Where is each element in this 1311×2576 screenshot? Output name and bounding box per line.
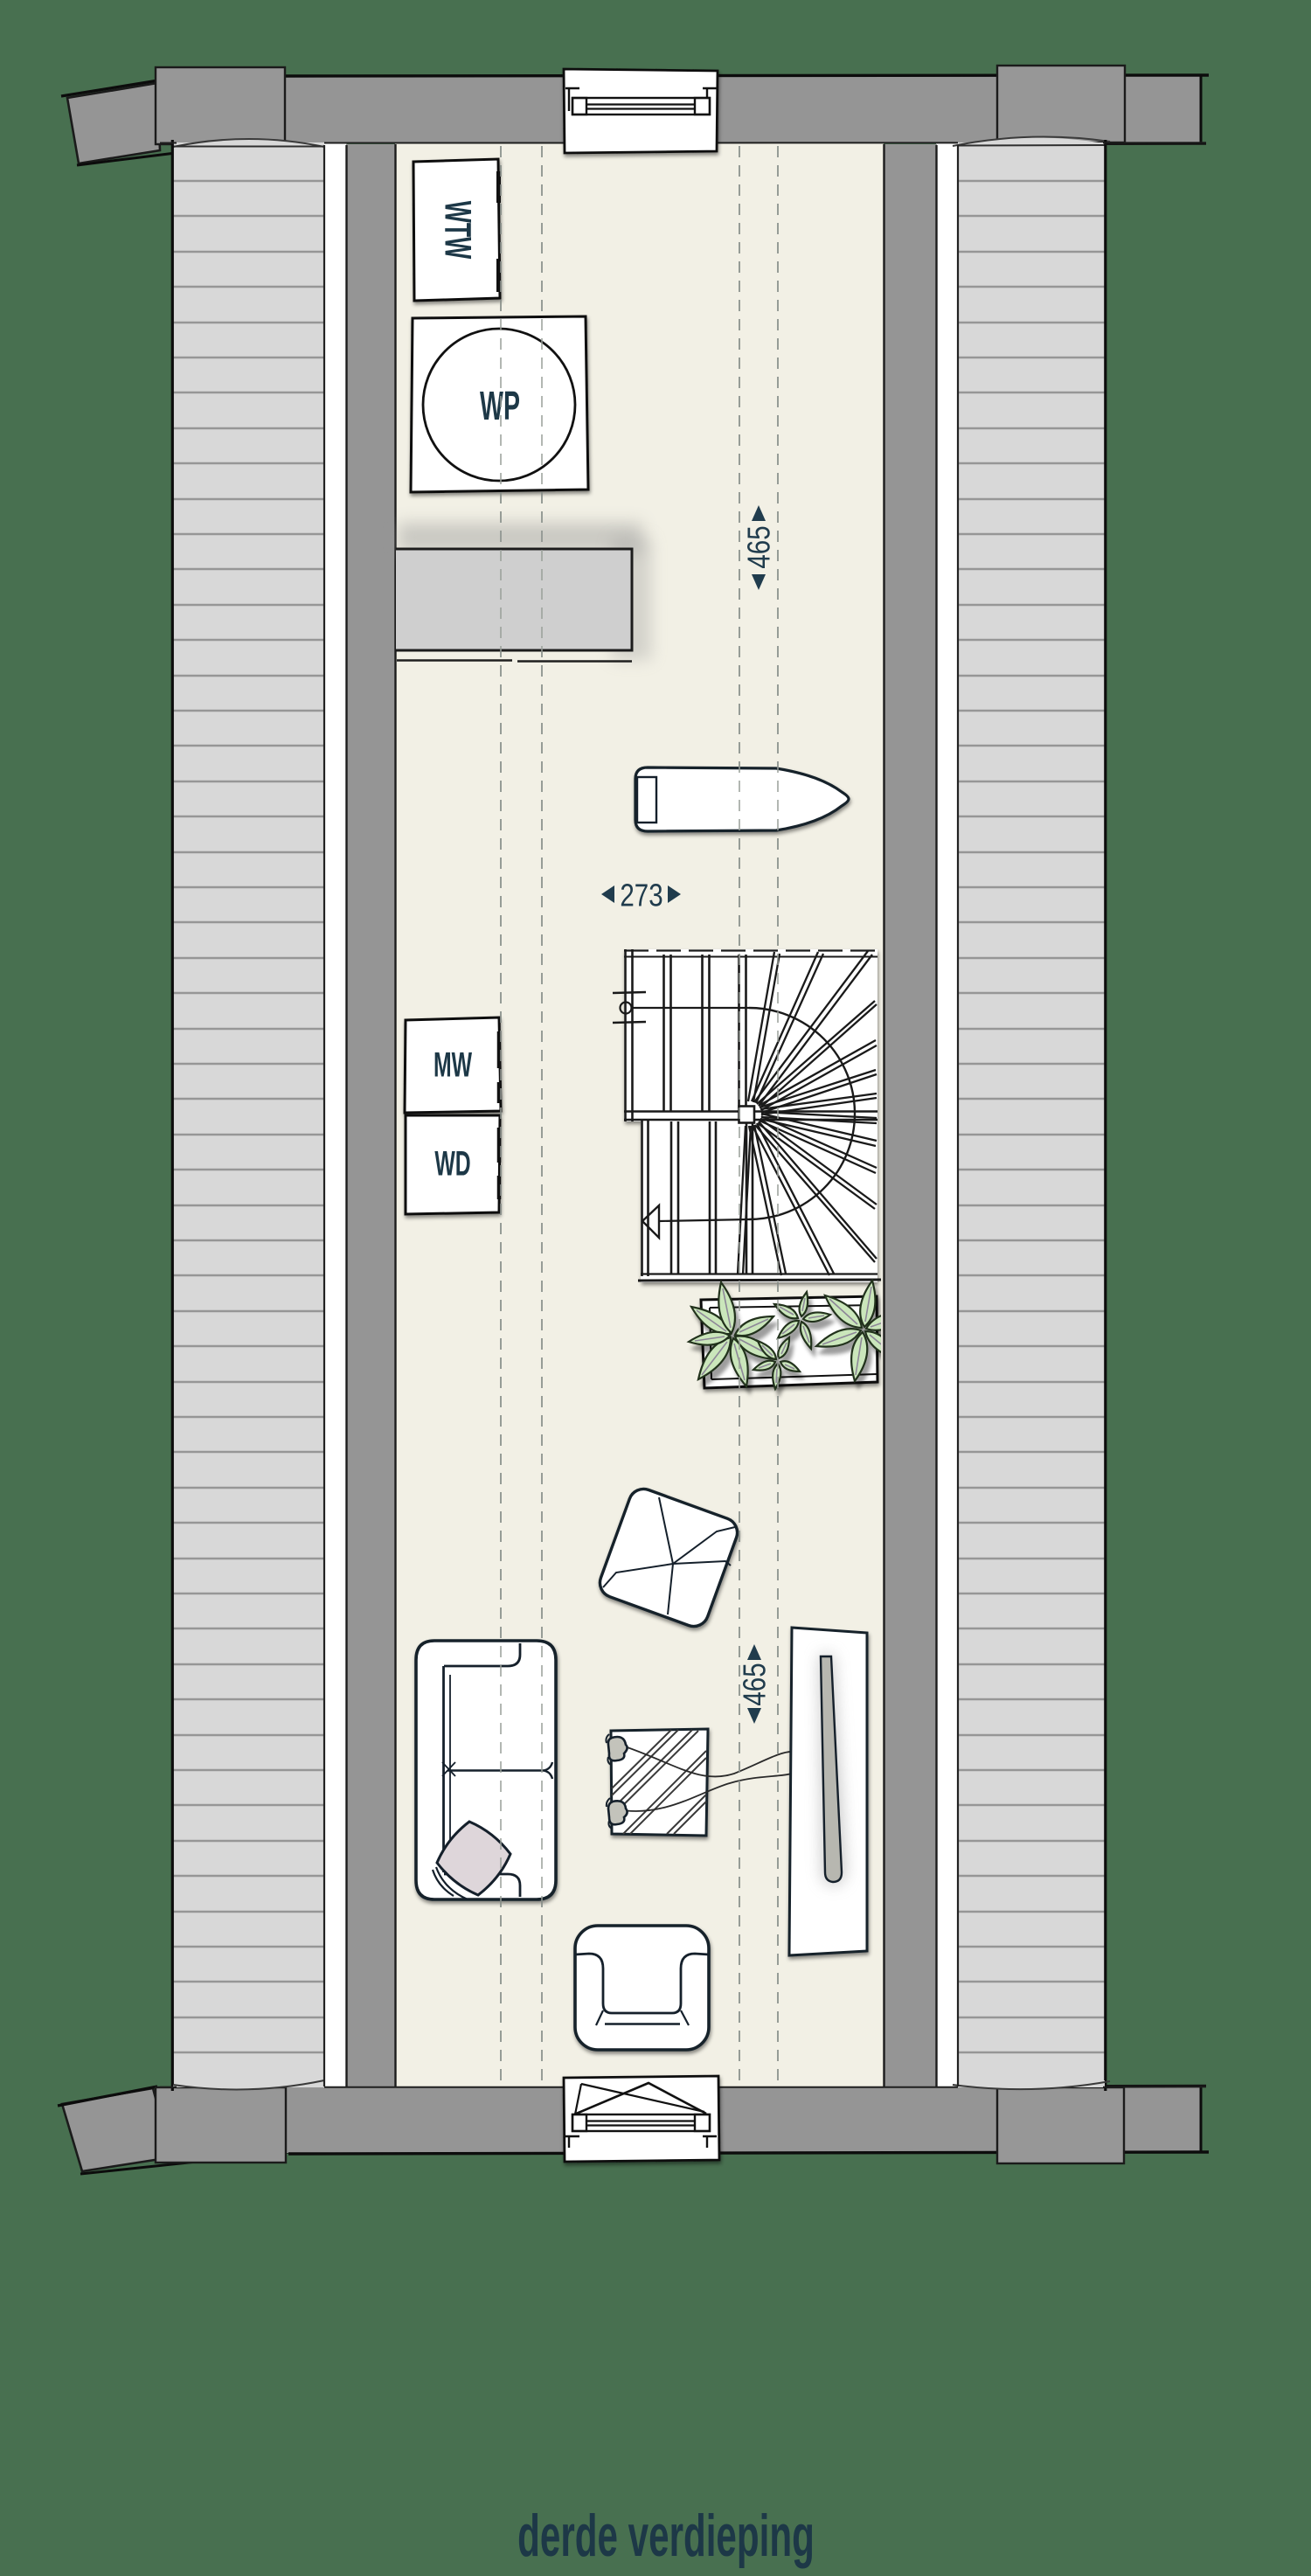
svg-text:WTW: WTW xyxy=(437,201,479,260)
svg-text:WD: WD xyxy=(434,1145,470,1184)
svg-text:derde verdieping: derde verdieping xyxy=(517,2503,815,2569)
svg-text:273: 273 xyxy=(620,878,662,913)
svg-text:465: 465 xyxy=(737,1663,772,1705)
svg-text:465: 465 xyxy=(741,525,776,568)
svg-text:MW: MW xyxy=(434,1046,472,1085)
